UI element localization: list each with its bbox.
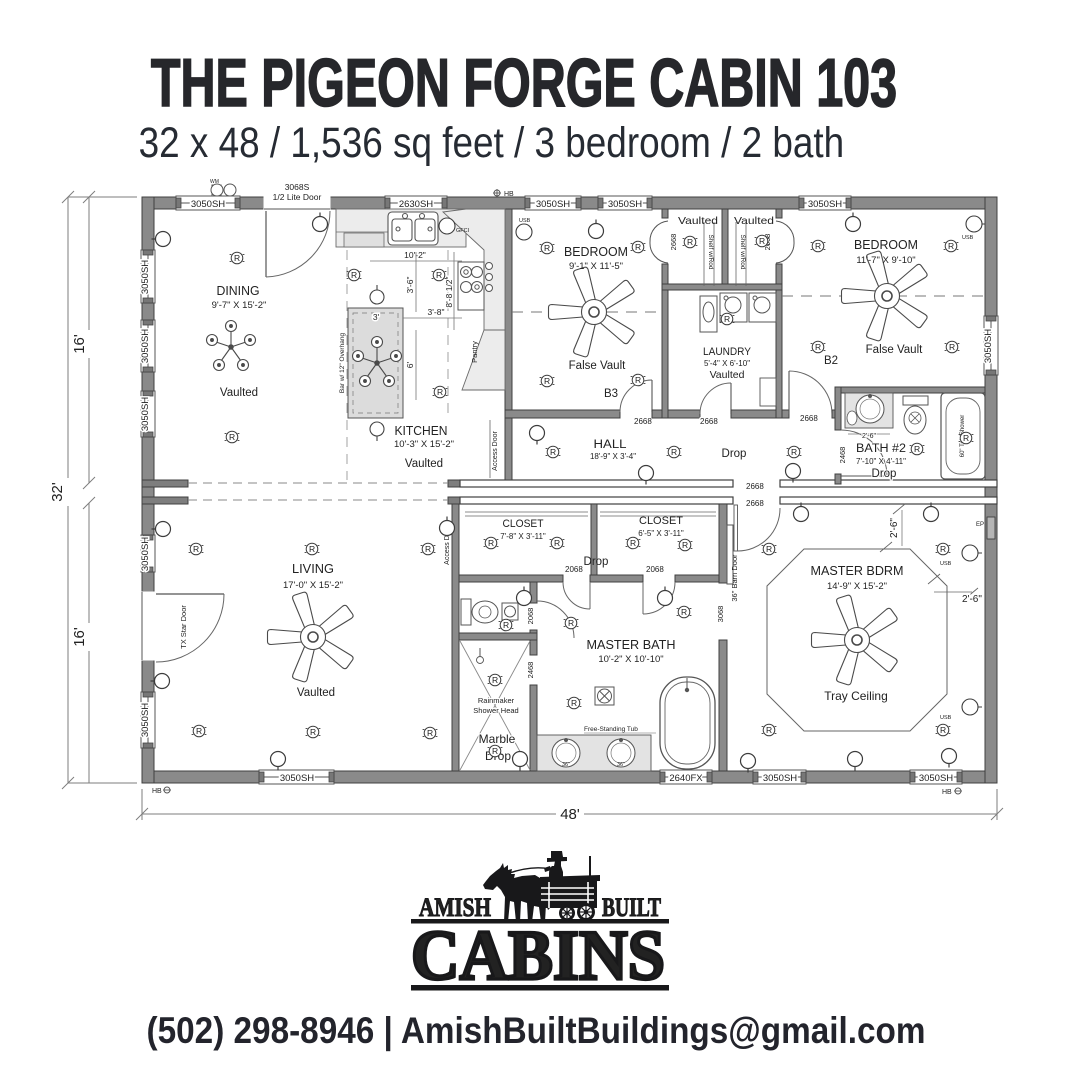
svg-text:LIVING: LIVING: [292, 562, 334, 576]
svg-text:8'-8 1/2": 8'-8 1/2": [444, 276, 454, 307]
svg-text:2468: 2468: [526, 662, 535, 679]
svg-text:Rainmaker: Rainmaker: [478, 696, 515, 705]
svg-text:3050SH: 3050SH: [919, 773, 953, 784]
svg-text:6': 6': [405, 361, 415, 368]
svg-text:9'-7" X 15'-2": 9'-7" X 15'-2": [212, 300, 267, 311]
svg-text:36" Barn Door: 36" Barn Door: [730, 554, 739, 602]
svg-text:False Vault: False Vault: [866, 344, 923, 356]
svg-text:9'-1" X 11'-5": 9'-1" X 11'-5": [569, 261, 623, 272]
svg-text:2'-6": 2'-6": [962, 594, 982, 605]
svg-text:2068: 2068: [646, 565, 664, 574]
svg-text:10'-2" X 10'-10": 10'-2" X 10'-10": [598, 654, 663, 665]
svg-text:Bar w/ 12" Overhang: Bar w/ 12" Overhang: [339, 333, 346, 394]
svg-text:HB: HB: [504, 191, 514, 198]
svg-text:32': 32': [49, 482, 66, 502]
svg-text:Access Door: Access Door: [492, 430, 499, 470]
svg-text:3050SH: 3050SH: [536, 199, 570, 210]
svg-text:2'-6": 2'-6": [862, 433, 876, 440]
svg-text:Drop: Drop: [722, 448, 747, 460]
svg-text:TX Star Door: TX Star Door: [179, 605, 188, 649]
svg-text:7'-8" X 3'-11": 7'-8" X 3'-11": [500, 532, 546, 541]
svg-text:48': 48': [560, 806, 580, 823]
svg-text:CABINS: CABINS: [411, 917, 665, 995]
svg-text:3068S: 3068S: [285, 182, 310, 192]
svg-text:2630SH: 2630SH: [399, 199, 433, 210]
svg-text:HALL: HALL: [594, 439, 628, 451]
svg-text:5'-4" X 6'-10": 5'-4" X 6'-10": [704, 359, 750, 368]
svg-text:Shelf w/Rod: Shelf w/Rod: [739, 234, 746, 269]
svg-text:DINING: DINING: [217, 284, 260, 298]
svg-text:LAUNDRY: LAUNDRY: [703, 346, 752, 358]
svg-text:14'-9" X 15'-2": 14'-9" X 15'-2": [827, 581, 887, 592]
svg-text:WM: WM: [210, 179, 219, 185]
svg-text:Vaulted: Vaulted: [220, 387, 258, 399]
svg-text:2668: 2668: [700, 417, 718, 426]
svg-text:BEDROOM: BEDROOM: [564, 245, 628, 259]
svg-text:Vaulted: Vaulted: [297, 687, 335, 699]
svg-text:3050SH: 3050SH: [140, 537, 151, 571]
svg-text:11'-7" X 9'-10": 11'-7" X 9'-10": [856, 255, 915, 266]
svg-text:17'-0" X 15'-2": 17'-0" X 15'-2": [283, 580, 343, 591]
svg-text:B2: B2: [824, 355, 838, 367]
svg-text:3050SH: 3050SH: [763, 773, 797, 784]
svg-text:BEDROOM: BEDROOM: [854, 238, 918, 252]
svg-text:MASTER BDRM: MASTER BDRM: [811, 564, 904, 578]
svg-text:MASTER BATH: MASTER BATH: [587, 638, 676, 652]
svg-text:2468: 2468: [838, 447, 847, 464]
svg-text:2068: 2068: [526, 608, 535, 625]
svg-text:USB: USB: [940, 561, 952, 567]
svg-text:2668: 2668: [746, 499, 764, 508]
svg-text:KITCHEN: KITCHEN: [395, 424, 448, 438]
svg-text:18'-9" X 3'-4": 18'-9" X 3'-4": [590, 452, 636, 461]
svg-text:2'-6": 2'-6": [889, 518, 900, 538]
svg-text:Drop: Drop: [584, 556, 609, 568]
svg-text:GFCI: GFCI: [456, 228, 470, 234]
svg-text:3050SH: 3050SH: [191, 199, 225, 210]
svg-text:Free-Standing Tub: Free-Standing Tub: [584, 726, 638, 733]
svg-text:2068: 2068: [565, 565, 583, 574]
svg-text:CLOSET: CLOSET: [639, 515, 683, 527]
svg-text:HB: HB: [942, 789, 952, 796]
svg-text:3050SH: 3050SH: [983, 329, 994, 363]
svg-text:CLOSET: CLOSET: [503, 518, 544, 530]
svg-text:36": 36": [617, 762, 625, 768]
svg-text:7'-10" X 4'-11": 7'-10" X 4'-11": [856, 457, 906, 466]
svg-text:3050SH: 3050SH: [608, 199, 642, 210]
svg-text:2668: 2668: [634, 417, 652, 426]
svg-text:2668: 2668: [800, 414, 818, 423]
svg-text:USB: USB: [940, 715, 952, 721]
svg-text:2640FX: 2640FX: [669, 773, 703, 784]
svg-text:16': 16': [71, 334, 88, 354]
svg-text:16': 16': [71, 627, 88, 647]
svg-text:B3: B3: [604, 388, 618, 400]
svg-text:2668: 2668: [669, 234, 678, 251]
svg-text:3050SH: 3050SH: [280, 773, 314, 784]
svg-text:USB: USB: [519, 218, 531, 224]
svg-text:36": 36": [562, 762, 570, 768]
svg-text:Vaulted: Vaulted: [405, 458, 443, 470]
svg-text:3': 3': [373, 312, 380, 322]
svg-text:3068: 3068: [716, 606, 725, 623]
svg-text:HB: HB: [152, 788, 162, 795]
svg-text:Drop: Drop: [872, 468, 897, 480]
svg-text:1/2 Lite Door: 1/2 Lite Door: [273, 192, 322, 202]
svg-text:3050SH: 3050SH: [140, 260, 151, 294]
svg-text:Vaulted: Vaulted: [734, 215, 774, 227]
svg-text:3050SH: 3050SH: [140, 397, 151, 431]
svg-text:BATH #2: BATH #2: [856, 443, 906, 455]
svg-text:3'-6": 3'-6": [405, 277, 415, 294]
svg-text:Pantry: Pantry: [470, 341, 479, 363]
svg-text:3050SH: 3050SH: [808, 199, 842, 210]
svg-text:3050SH: 3050SH: [140, 703, 151, 737]
svg-text:3'-8": 3'-8": [428, 307, 445, 317]
svg-text:Shelf w/Rod: Shelf w/Rod: [707, 234, 714, 269]
svg-text:2668: 2668: [746, 482, 764, 491]
svg-text:Vaulted: Vaulted: [710, 369, 745, 381]
svg-text:USB: USB: [962, 235, 974, 241]
svg-text:False Vault: False Vault: [569, 360, 626, 372]
svg-text:Tray Ceiling: Tray Ceiling: [824, 689, 888, 703]
svg-text:10'-3" X 15'-2": 10'-3" X 15'-2": [394, 439, 454, 450]
svg-text:6'-5" X 3'-11": 6'-5" X 3'-11": [638, 529, 684, 538]
svg-text:3050SH: 3050SH: [140, 329, 151, 363]
svg-text:Shower Head: Shower Head: [473, 706, 518, 715]
svg-text:10'-2": 10'-2": [404, 250, 426, 260]
svg-text:EP: EP: [976, 522, 984, 528]
svg-text:Marble: Marble: [479, 732, 516, 746]
svg-text:Vaulted: Vaulted: [678, 215, 718, 227]
